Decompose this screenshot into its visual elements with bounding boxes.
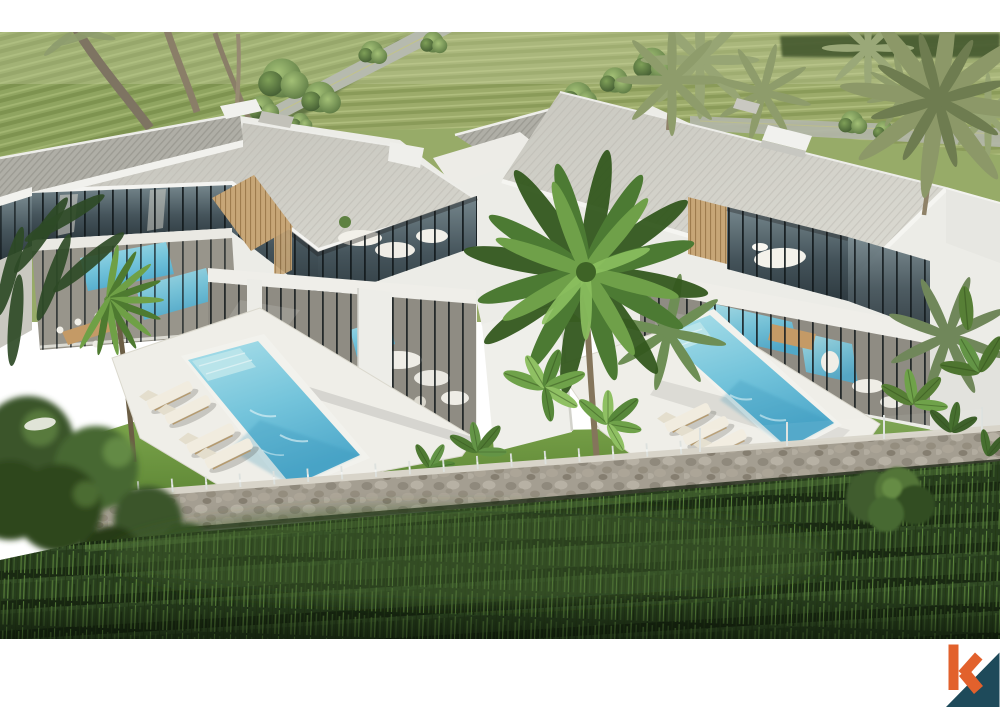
architectural-render	[0, 0, 1000, 707]
palm-canopy	[616, 24, 728, 136]
dining-chair	[75, 319, 82, 326]
render-canvas	[0, 0, 1000, 707]
letterbox-top	[0, 0, 1000, 32]
timber-slat-wall	[688, 197, 727, 264]
dining-chair	[57, 327, 64, 334]
letterbox-bottom	[0, 639, 1000, 707]
bottom-vignette	[0, 595, 1000, 640]
timber-slat-panel	[274, 226, 292, 279]
light-patch	[110, 505, 830, 605]
logo-k-stem	[949, 645, 959, 691]
indoor-plant	[339, 216, 351, 228]
